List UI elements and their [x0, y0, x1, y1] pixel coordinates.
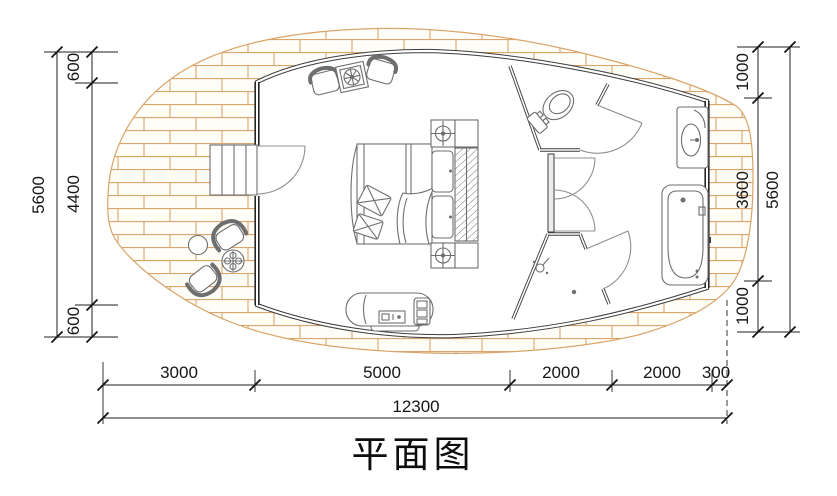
floor-plan-page: 600 4400 600 5600 1000 3600 1000 5600 30… — [0, 0, 837, 496]
bathtub — [662, 185, 708, 285]
deck-side-table — [189, 236, 208, 255]
dim-left-600-top: 600 — [64, 53, 83, 81]
dim-right-total-5600: 5600 — [763, 171, 782, 209]
side-table — [336, 61, 369, 92]
dim-left-total-5600: 5600 — [29, 176, 48, 214]
tub-faucet — [681, 198, 686, 203]
floor-drain — [572, 290, 576, 294]
dim-left-600-bottom: 600 — [64, 307, 83, 335]
dim-left-4400: 4400 — [64, 175, 83, 213]
middle-wall — [548, 154, 554, 232]
dimension-right: 1000 3600 1000 5600 — [733, 42, 800, 338]
dim-bottom-total-12300: 12300 — [392, 397, 439, 416]
washbasin-vanity — [677, 107, 708, 168]
dim-bottom-2000-a: 2000 — [542, 363, 580, 382]
dim-bottom-2000-b: 2000 — [643, 363, 681, 382]
dim-bottom-300: 300 — [702, 363, 730, 382]
sofa-bench — [346, 293, 433, 331]
dim-bottom-3000: 3000 — [160, 363, 198, 382]
drawing-title: 平面图 — [352, 434, 475, 475]
dim-right-1000-top: 1000 — [733, 53, 752, 91]
basin-faucet — [695, 138, 699, 142]
dim-right-3600: 3600 — [733, 171, 752, 209]
dimension-left: 600 4400 600 5600 — [29, 47, 118, 343]
dim-bottom-5000: 5000 — [363, 363, 401, 382]
outdoor-round-table — [222, 250, 244, 272]
double-bed — [351, 144, 433, 244]
floor-plan-drawing: 600 4400 600 5600 1000 3600 1000 5600 30… — [0, 0, 837, 496]
dim-right-1000-bottom: 1000 — [733, 287, 752, 325]
